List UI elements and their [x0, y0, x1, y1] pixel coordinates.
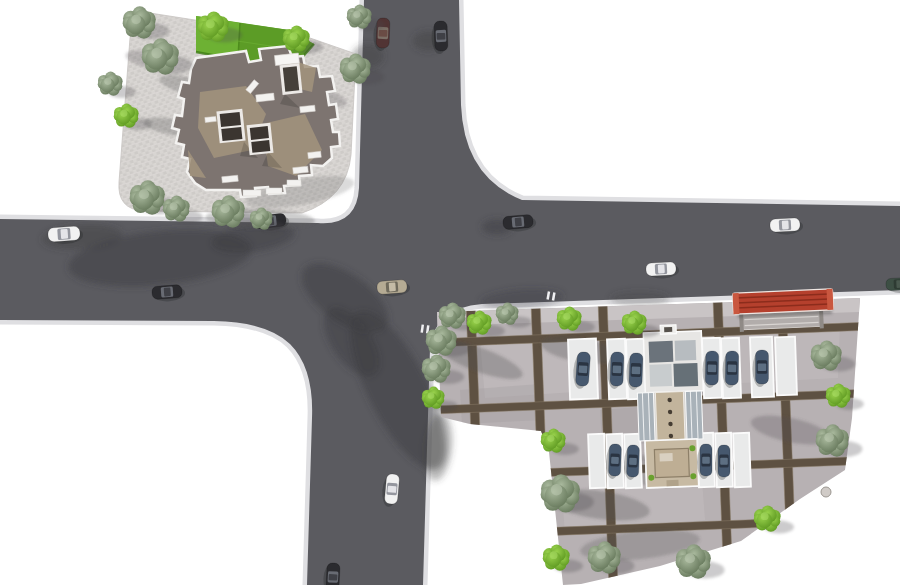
site-plan-svg — [0, 0, 900, 585]
skylight — [216, 109, 245, 144]
site-plan-render — [0, 0, 900, 585]
entrance-canopy — [733, 289, 834, 314]
core-bottom-block — [645, 439, 699, 488]
parking-stall — [775, 337, 797, 396]
parking-stall — [733, 433, 751, 488]
core-middle-block — [637, 391, 703, 441]
skylight — [246, 123, 273, 155]
manhole-cover — [821, 487, 831, 497]
residential-building-core — [635, 324, 707, 488]
parking-stall — [588, 434, 606, 489]
